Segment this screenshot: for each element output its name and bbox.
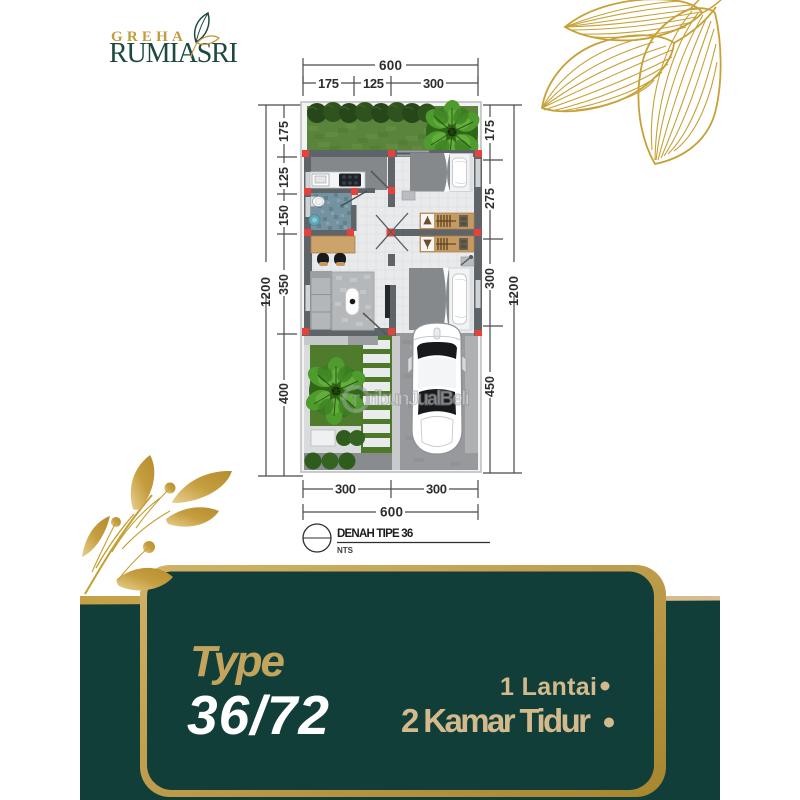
- svg-text:300: 300: [483, 268, 497, 289]
- svg-text:125: 125: [363, 76, 384, 91]
- svg-text:300: 300: [335, 482, 356, 497]
- svg-text:DENAH TIPE 36: DENAH TIPE 36: [337, 528, 413, 540]
- svg-text:1200: 1200: [506, 276, 521, 306]
- svg-text:400: 400: [277, 383, 291, 404]
- svg-text:RUMIASRI: RUMIASRI: [109, 38, 238, 69]
- svg-text:1200: 1200: [258, 277, 273, 307]
- svg-text:300: 300: [423, 76, 444, 91]
- svg-text:600: 600: [380, 505, 403, 520]
- svg-text:2 Kamar Tidur: 2 Kamar Tidur: [401, 702, 591, 739]
- svg-text:150: 150: [277, 205, 291, 226]
- svg-text:300: 300: [426, 482, 447, 497]
- svg-text:175: 175: [277, 121, 291, 142]
- svg-text:ribunJualBeli: ribunJualBeli: [368, 388, 470, 410]
- svg-text:36/72: 36/72: [187, 684, 329, 746]
- svg-text:600: 600: [379, 58, 402, 73]
- svg-text:125: 125: [277, 167, 291, 188]
- svg-text:450: 450: [483, 376, 497, 397]
- svg-text:NTS: NTS: [337, 546, 354, 555]
- svg-text:350: 350: [277, 274, 291, 295]
- svg-text:1 Lantai: 1 Lantai: [500, 673, 597, 701]
- svg-text:Type: Type: [190, 637, 285, 686]
- svg-text:T: T: [350, 391, 361, 410]
- svg-text:175: 175: [483, 120, 497, 141]
- svg-text:275: 275: [483, 188, 497, 209]
- svg-text:175: 175: [318, 76, 339, 91]
